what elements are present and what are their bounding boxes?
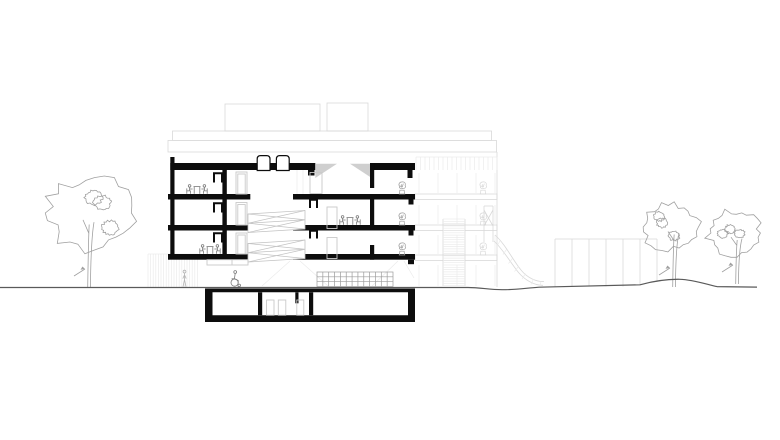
scissor-stair [248, 211, 305, 263]
slab-edge-lip [409, 200, 414, 205]
parapet-stub [408, 170, 413, 178]
basement-door [267, 300, 275, 315]
roof-parapet-band [173, 131, 492, 141]
cut-section [168, 156, 415, 322]
building-section-drawing [0, 0, 780, 440]
tree-trunk [731, 237, 742, 284]
floor-slab-cut [168, 194, 250, 200]
slide-rail-top [495, 235, 544, 282]
roof-slab-cut [372, 163, 415, 170]
elevator-doors [236, 172, 247, 254]
canopy-patch [734, 230, 745, 238]
door-lintel [214, 203, 222, 212]
slide-rail-bottom [494, 241, 543, 285]
table-with-two-people [340, 216, 360, 225]
floor-slab-cut [293, 194, 415, 200]
drawing-canvas [0, 0, 780, 440]
balcony-plant [399, 182, 406, 194]
tree-trunk [668, 232, 679, 288]
lightwell-wedge [315, 164, 337, 178]
wheelchair-person [231, 271, 241, 287]
door-lintel [214, 173, 222, 182]
slide-rungs [497, 241, 541, 286]
annotation-arrow [722, 265, 733, 272]
roof-hatch-chimney [257, 156, 270, 171]
tree [45, 176, 136, 288]
annotation-arrow [659, 268, 670, 275]
canopy-patch [656, 218, 667, 228]
playground-slide [484, 206, 544, 286]
lightwell-wedge [350, 164, 372, 178]
roof-hatch-chimney [276, 156, 289, 171]
balcony-plant [399, 243, 406, 255]
tree [643, 202, 701, 287]
rooftop-box [327, 103, 368, 131]
slab-edge-lip [409, 231, 414, 236]
dropped-ceiling-box [207, 260, 248, 265]
interior-wall-cut [370, 200, 374, 231]
interior-wall-cut [222, 170, 226, 254]
exterior-wall-cut [170, 157, 174, 260]
canopy-patch [717, 229, 729, 238]
door-lintel [214, 233, 222, 242]
background-stair-hatch [443, 219, 465, 286]
bleacher-shelf [317, 272, 393, 287]
roof-slab-cut [170, 163, 315, 170]
ceiling-light-cones [262, 261, 414, 286]
canopy-patch [102, 220, 120, 235]
tree [705, 209, 761, 284]
balcony-plant [399, 213, 406, 225]
elevation-floor-band [415, 194, 497, 200]
annotation-arrow [74, 269, 85, 276]
door-lintel [310, 200, 317, 208]
interior-wall-cut [370, 163, 374, 188]
background-balcony-plant [480, 243, 487, 255]
roof-terrace-railing [416, 157, 497, 170]
canopy-patch [725, 225, 736, 234]
basement-door [278, 300, 286, 315]
floor-slab-cut [293, 254, 415, 260]
background-balcony-plant [480, 213, 487, 225]
floor-slab-cut [168, 254, 250, 260]
trees [45, 176, 761, 288]
tree-canopy [45, 176, 136, 254]
canopy-patch [654, 211, 665, 221]
table-with-two-people [200, 245, 220, 254]
background-balcony-plant [480, 182, 487, 194]
basement-partition [309, 292, 313, 315]
tree-canopy [643, 202, 701, 252]
floor-slab-cut [168, 225, 250, 231]
canopy-patch [93, 195, 112, 210]
garden-fence [555, 239, 657, 287]
basement [205, 289, 415, 323]
ground-line [0, 279, 757, 289]
slab-edge-lip [408, 260, 414, 265]
interior-wall-cut [370, 245, 374, 260]
table-with-two-people [187, 185, 207, 194]
roof-fascia-band [168, 141, 497, 153]
rooftop-box [225, 104, 320, 131]
floor-slab-cut [293, 225, 415, 231]
door-lintel [310, 231, 317, 239]
basement-partition [258, 292, 262, 315]
